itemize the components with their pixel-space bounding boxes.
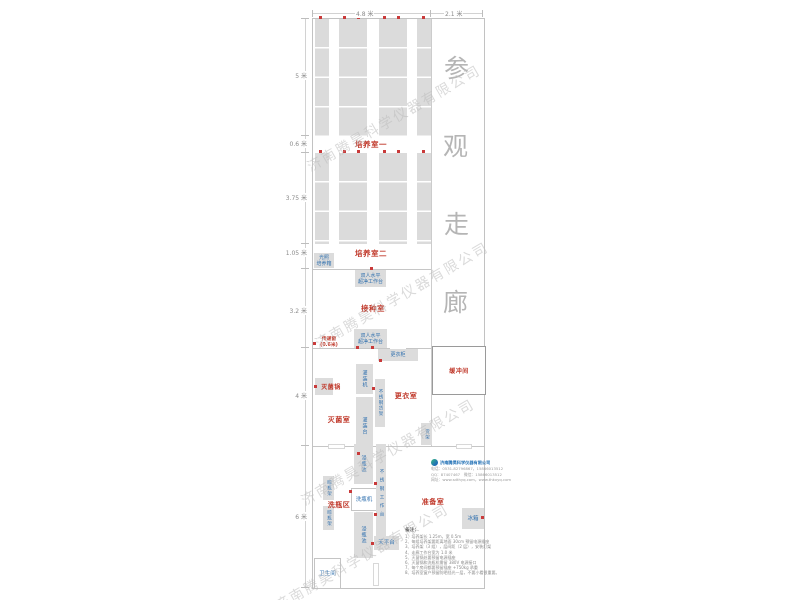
- light-incubator-box: 光照培养箱: [314, 253, 334, 268]
- room-label-preparation: 准备室: [415, 497, 451, 507]
- culture-rack: [379, 153, 394, 244]
- soaking-pool-label: 浸瓶池: [361, 526, 367, 544]
- culture-rack: [353, 19, 368, 136]
- door-opening: [456, 444, 472, 449]
- outlet-dot: [397, 16, 400, 19]
- clean-bench-label: 双人水平超净工作台: [358, 273, 383, 285]
- dim-tick: [482, 10, 483, 17]
- floorplan-outline: 参 观 走 廊 培养室一 培养室二 光: [312, 18, 485, 589]
- company-contact-line: 网址：www.sdthyq.com，www.thkxyq.com: [431, 477, 487, 483]
- culture-rack: [315, 153, 330, 244]
- dim-label-0-6m: 0.6 米: [282, 139, 308, 148]
- outlet-dot: [383, 150, 386, 153]
- drying-rack-label: 晾瓶架: [326, 480, 332, 497]
- corridor-label-char: 廊: [443, 283, 468, 319]
- culture-rack: [417, 153, 432, 244]
- dim-tick: [301, 152, 309, 153]
- culture-rack: [315, 19, 330, 136]
- dim-label-3-2m: 3.2 米: [282, 306, 308, 315]
- balance-table-box: 天平台: [374, 536, 399, 550]
- company-contact-line: 电话：0531-82796867，15866013512: [431, 466, 487, 472]
- dim-tick: [301, 445, 309, 446]
- outlet-dot: [374, 482, 377, 485]
- culture-rack: [379, 19, 394, 136]
- stainless-rack-label: 不锈钢货架: [377, 389, 383, 417]
- changing-cabinet-box: 更衣柜: [378, 349, 418, 361]
- culture-rack: [393, 19, 408, 136]
- outlet-dot: [422, 16, 425, 19]
- clean-bench-label: 双人水平超净工作台: [358, 333, 383, 345]
- shelf-box: 货架: [421, 423, 432, 445]
- outlet-dot: [371, 346, 374, 349]
- toilet-box: 卫生间: [314, 558, 341, 589]
- left-dimension-line: [305, 18, 306, 587]
- outlet-dot: [374, 513, 377, 516]
- company-logo-icon: [431, 459, 438, 466]
- notes-title: 备注：: [405, 527, 489, 534]
- sterilizer-label: 灭菌锅: [317, 382, 345, 391]
- outlet-dot: [357, 150, 360, 153]
- room-label-culture-1: 培养室一: [341, 139, 401, 150]
- room-label-culture-2: 培养室二: [341, 248, 401, 259]
- note-item: 3、培养架（3 组），层间距（2 层），安装灯架: [405, 544, 489, 549]
- buffer-room-box: 缓冲间: [432, 346, 486, 395]
- interior-wall: [471, 446, 484, 447]
- stainless-worktable-box: 不锈钢工作台: [376, 444, 386, 544]
- dim-label-4-8m: 4.8 米: [355, 9, 374, 18]
- room-label-sterilization: 灭菌室: [321, 415, 357, 425]
- dim-tick: [301, 347, 309, 348]
- fridge-box: 冰箱: [462, 508, 484, 529]
- room-label-changing: 更衣室: [388, 391, 424, 401]
- outlet-dot: [422, 150, 425, 153]
- bottle-washer-label: 洗瓶机: [356, 497, 373, 503]
- soaking-pool-box: 浸瓶池: [354, 444, 373, 484]
- dim-tick: [312, 10, 313, 17]
- outlet-dot: [383, 16, 386, 19]
- outlet-dot: [349, 490, 352, 493]
- company-block: 济南腾昊科学仪器有限公司 电话：0531-82796867，1586601351…: [431, 459, 487, 483]
- filling-machine-box: 灌装机: [356, 364, 373, 394]
- outlet-dot: [379, 359, 382, 362]
- soaking-pool-label: 浸瓶池: [361, 455, 367, 473]
- drying-rack-label: 晾瓶架: [326, 510, 332, 527]
- note-item: 8、培养室窗户预留防晒挡光一层，不要小看很重要。: [405, 570, 489, 575]
- corridor-label-char: 观: [443, 127, 468, 163]
- culture-rack: [339, 153, 354, 244]
- dim-label-5m: 5 米: [282, 71, 308, 80]
- transfer-window-dot: [313, 342, 316, 345]
- filling-table-label: 灌装台: [362, 417, 368, 435]
- transfer-window-label: 传递窗(0.6米): [315, 337, 343, 348]
- light-incubator-label: 光照培养箱: [316, 255, 331, 267]
- outlet-dot: [314, 385, 317, 388]
- dim-tick: [301, 243, 309, 244]
- notes-block: 备注： 1、培养架长 1.25m，宽 0.5m 2、每组培养架要距离地面 30c…: [405, 527, 489, 576]
- shelf-label: 货架: [424, 429, 430, 440]
- balance-table-label: 天平台: [378, 540, 395, 546]
- stainless-rack-box: 不锈钢货架: [375, 379, 385, 427]
- culture-rack: [339, 19, 354, 136]
- outlet-dot: [319, 16, 322, 19]
- dim-tick: [301, 18, 309, 19]
- room-label-inoculation: 接种室: [348, 303, 398, 314]
- outlet-dot: [371, 542, 374, 545]
- stainless-worktable-label: 不锈钢工作台: [378, 469, 384, 520]
- door-opening: [373, 563, 379, 586]
- outlet-dot: [357, 452, 360, 455]
- toilet-label: 卫生间: [319, 571, 336, 577]
- corridor-label-char: 参: [444, 49, 469, 85]
- outlet-dot: [372, 387, 375, 390]
- fridge-label: 冰箱: [467, 516, 478, 522]
- culture-rack: [353, 153, 368, 244]
- company-name: 济南腾昊科学仪器有限公司: [440, 460, 490, 466]
- dim-label-4m: 4 米: [282, 391, 308, 400]
- soaking-pool-box: 浸瓶池: [354, 512, 373, 558]
- dim-label-6m: 6 米: [282, 512, 308, 521]
- clean-bench-box: 双人水平超净工作台: [355, 270, 386, 287]
- corridor-label-char: 走: [444, 205, 469, 241]
- outlet-dot: [319, 150, 322, 153]
- room-label-washing: 洗瓶区: [321, 500, 357, 510]
- outlet-dot: [343, 16, 346, 19]
- outlet-dot: [370, 267, 373, 270]
- filling-machine-label: 灌装机: [362, 370, 368, 388]
- outlet-dot: [397, 150, 400, 153]
- outlet-dot: [343, 150, 346, 153]
- dim-tick: [430, 10, 431, 17]
- outlet-dot: [481, 516, 484, 519]
- dim-label-1-05m: 1.05 米: [282, 248, 308, 257]
- dim-tick: [301, 135, 309, 136]
- room-label-buffer: 缓冲间: [449, 366, 469, 375]
- dim-label-3-75m: 3.75 米: [282, 193, 308, 202]
- door-opening: [328, 444, 345, 449]
- culture-rack: [393, 153, 408, 244]
- dim-tick: [301, 268, 309, 269]
- dim-tick: [301, 587, 309, 588]
- dim-label-2-1m: 2.1 米: [444, 9, 463, 18]
- outlet-dot: [356, 346, 359, 349]
- changing-cabinet-label: 更衣柜: [390, 352, 405, 358]
- floorplan-canvas: 4.8 米 2.1 米 5 米 0.6 米 3.75 米 1.05 米 3.2 …: [0, 0, 800, 600]
- drying-rack-box: 晾瓶架: [323, 476, 334, 500]
- interior-wall: [313, 446, 328, 447]
- culture-rack: [417, 19, 432, 136]
